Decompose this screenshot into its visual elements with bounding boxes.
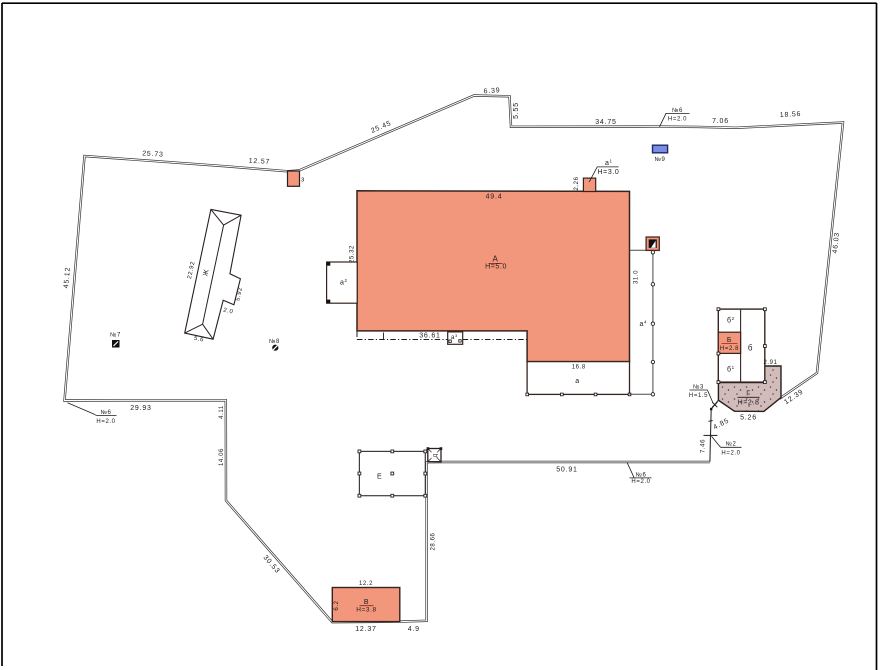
- svg-text:№6: №6: [672, 107, 683, 114]
- svg-text:Н=2.0: Н=2.0: [721, 450, 740, 456]
- svg-text:31.0: 31.0: [634, 270, 640, 284]
- svg-text:В: В: [364, 599, 369, 606]
- svg-text:2.91: 2.91: [763, 360, 777, 366]
- svg-text:д: д: [432, 453, 438, 457]
- svg-text:Б: Б: [727, 337, 732, 344]
- svg-text:Г: Г: [746, 391, 750, 398]
- svg-text:№7: №7: [110, 332, 121, 339]
- svg-text:12.37: 12.37: [355, 626, 377, 633]
- svg-text:4.9: 4.9: [408, 626, 420, 633]
- svg-text:29.93: 29.93: [130, 405, 152, 412]
- svg-text:12.57: 12.57: [249, 158, 271, 166]
- svg-text:12.2: 12.2: [359, 581, 373, 587]
- svg-text:16.8: 16.8: [572, 365, 586, 371]
- svg-text:5.55: 5.55: [513, 102, 520, 119]
- svg-text:Н=2.0: Н=2.0: [96, 419, 115, 425]
- svg-text:6.39: 6.39: [483, 87, 500, 95]
- svg-text:Н=2.0: Н=2.0: [668, 116, 687, 122]
- svg-text:18.56: 18.56: [780, 111, 802, 119]
- svg-text:25.32: 25.32: [350, 245, 356, 263]
- svg-text:7.46: 7.46: [701, 439, 707, 453]
- svg-text:34.75: 34.75: [595, 119, 617, 126]
- svg-text:28.66: 28.66: [431, 532, 437, 550]
- svg-text:з: з: [301, 177, 305, 184]
- svg-text:Н=3.8: Н=3.8: [356, 607, 377, 614]
- svg-text:Н=2.8: Н=2.8: [720, 346, 739, 352]
- svg-text:№3: №3: [693, 383, 704, 390]
- svg-text:б: б: [748, 344, 753, 353]
- svg-text:А: А: [493, 255, 499, 264]
- svg-text:25.73: 25.73: [142, 150, 164, 158]
- svg-text:№2: №2: [726, 440, 737, 447]
- svg-text:14.06: 14.06: [219, 448, 225, 466]
- svg-text:№6: №6: [636, 471, 647, 478]
- svg-text:49.4: 49.4: [486, 194, 503, 201]
- svg-text:36.61: 36.61: [419, 333, 441, 340]
- svg-text:4.11: 4.11: [219, 405, 225, 419]
- svg-text:№6: №6: [101, 409, 112, 416]
- svg-text:№8: №8: [269, 338, 280, 345]
- svg-text:Н=2.0: Н=2.0: [631, 479, 650, 485]
- svg-text:Е: Е: [377, 474, 382, 481]
- svg-text:5.26: 5.26: [740, 415, 757, 422]
- svg-text:50.91: 50.91: [556, 467, 578, 474]
- svg-text:Н=3.0: Н=3.0: [598, 169, 620, 176]
- svg-text:7.06: 7.06: [712, 118, 729, 125]
- svg-text:Ж: Ж: [202, 269, 210, 277]
- svg-text:№9: №9: [655, 156, 666, 163]
- svg-text:6.2: 6.2: [334, 600, 340, 610]
- svg-text:Н=1.5: Н=1.5: [689, 393, 708, 399]
- svg-text:а: а: [575, 378, 580, 385]
- svg-text:Н=2.8: Н=2.8: [738, 400, 760, 407]
- svg-text:2.26: 2.26: [574, 176, 580, 190]
- svg-text:Н=5.0: Н=5.0: [485, 263, 507, 270]
